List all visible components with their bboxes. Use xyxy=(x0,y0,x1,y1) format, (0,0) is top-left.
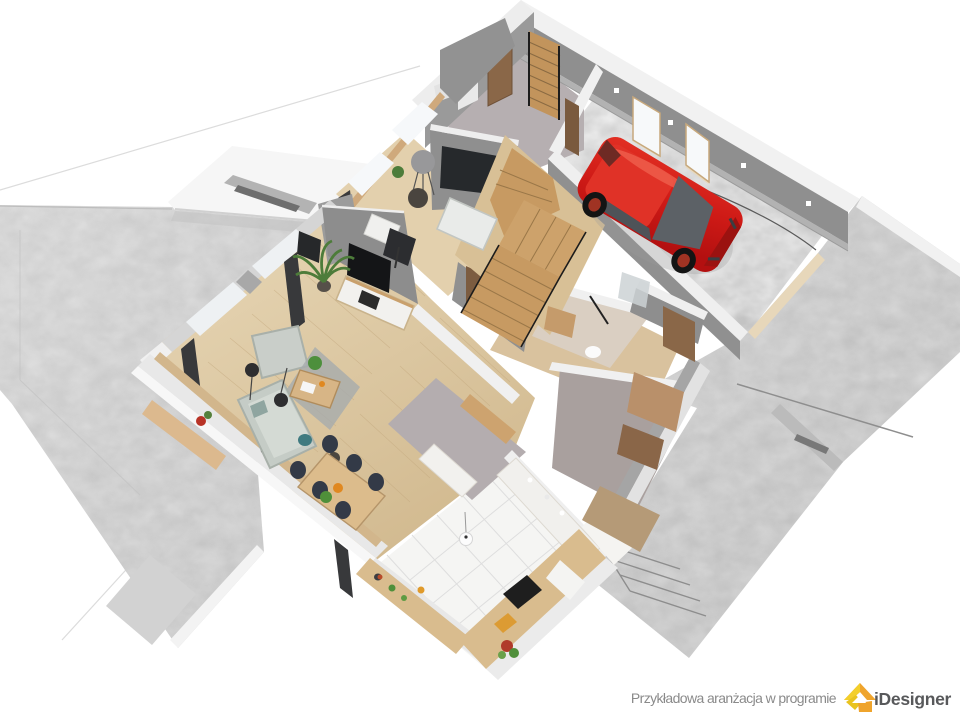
svg-text:Przykładowa aranżacja w progra: Przykładowa aranżacja w programie xyxy=(631,690,837,706)
svg-text:iDesigner: iDesigner xyxy=(874,689,952,709)
